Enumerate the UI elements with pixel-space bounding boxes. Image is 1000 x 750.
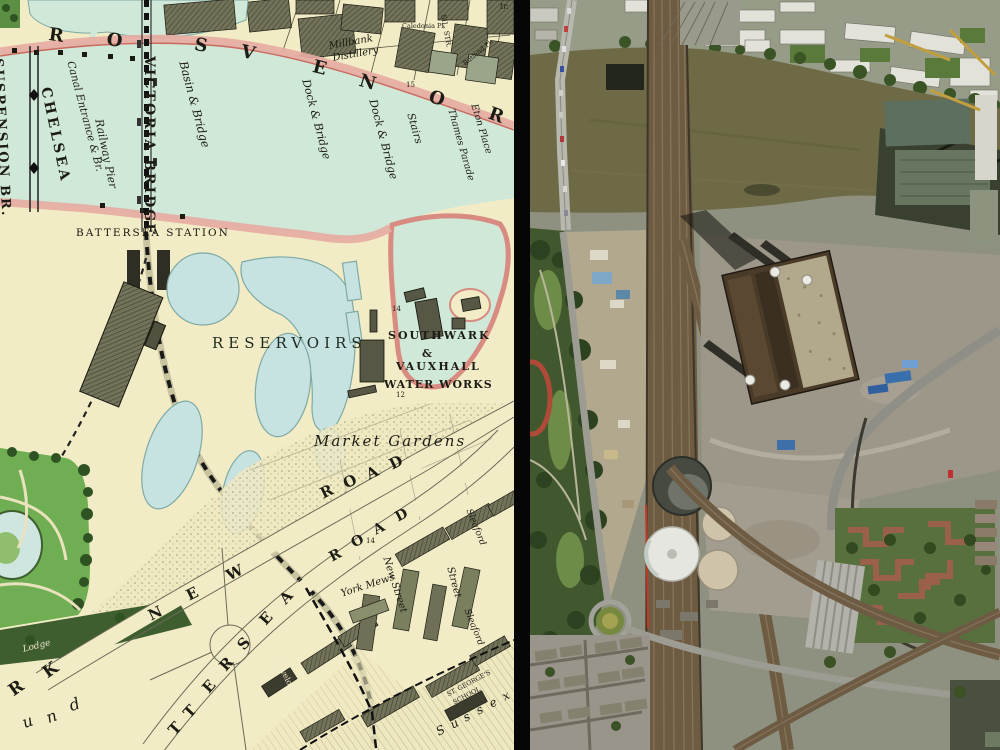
reservoirs-label: RESERVOIRS	[212, 336, 367, 351]
ampersand-label: &	[422, 348, 432, 359]
bottom-left-housing	[530, 635, 650, 750]
aerial-photo-panel	[530, 0, 1000, 750]
battersea-station-label: BATTERSEA STATION	[76, 228, 230, 239]
market-gardens-label: Market Gardens	[314, 434, 466, 449]
red-vehicle	[948, 470, 953, 478]
water-works-label: WATER WORKS	[384, 379, 493, 390]
victoria-bridge-label: VICTORIA BRIDGE	[142, 56, 156, 236]
panel-divider	[514, 0, 530, 750]
plot-number-14b: 14	[366, 538, 375, 545]
screenshot-stage: R O S V E N O R SUSPENSION BR. CHELSEA C…	[0, 0, 1000, 750]
plot-number-15: 15	[406, 82, 415, 89]
victoria-approach-tracks	[680, 0, 740, 45]
caledonia-label: Caledonia Pl.	[402, 23, 446, 30]
plot-number-14a: 14	[392, 306, 401, 313]
tr-label: tr.	[500, 3, 509, 11]
southwark-label: SOUTHWARK	[388, 330, 491, 341]
plot-number-12: 12	[396, 392, 405, 399]
vauxhall-label: VAUXHALL	[396, 361, 481, 372]
shore-letter: O	[105, 31, 123, 51]
river-jetty	[606, 64, 644, 90]
historic-map-panel: R O S V E N O R SUSPENSION BR. CHELSEA C…	[0, 0, 514, 750]
shore-letter: R	[47, 26, 64, 46]
aerial-photo-graphic	[530, 0, 1000, 750]
